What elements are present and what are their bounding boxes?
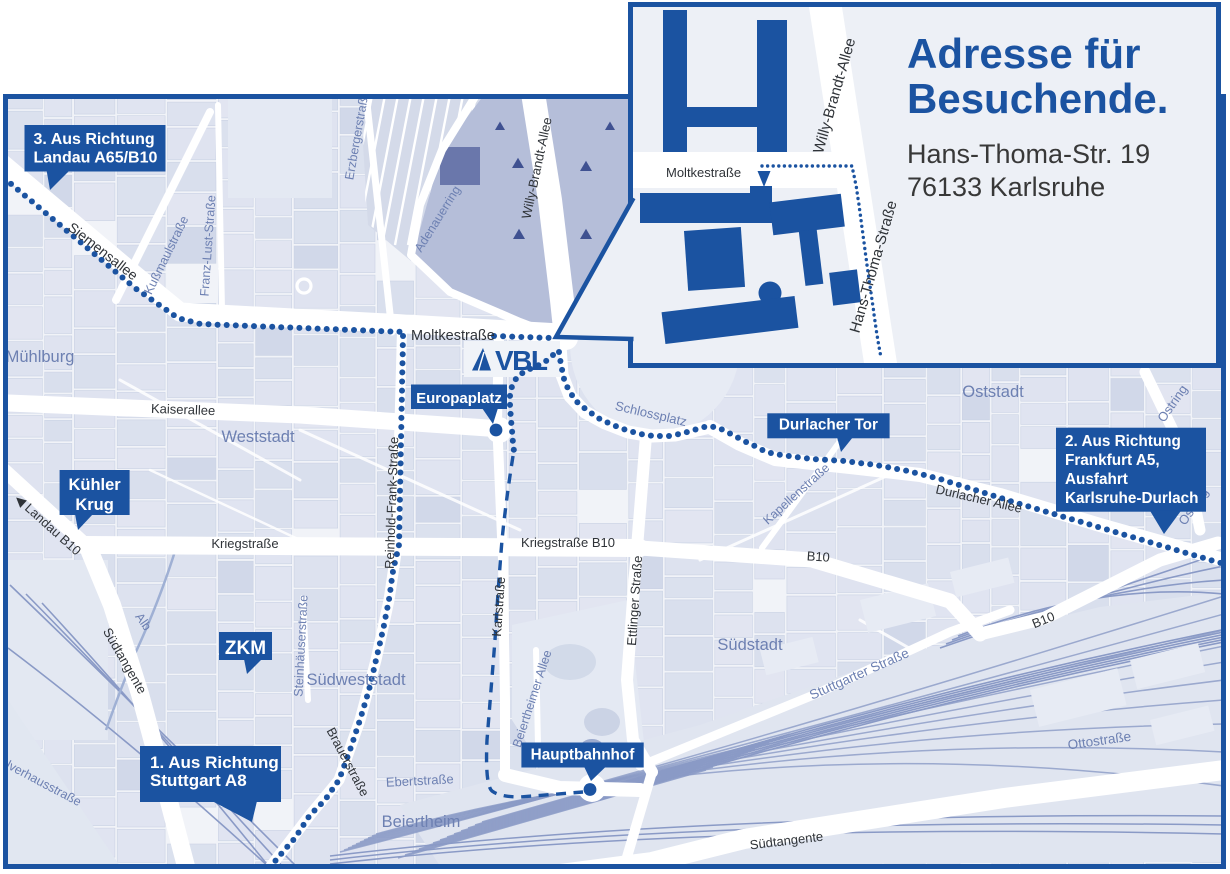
svg-text:Frankfurt A5,: Frankfurt A5, [1065,452,1160,469]
svg-text:Landau A65/B10: Landau A65/B10 [34,150,158,167]
svg-text:Besuchende.: Besuchende. [907,75,1168,122]
svg-text:ZKM: ZKM [225,638,266,659]
svg-text:1. Aus Richtung: 1. Aus Richtung [150,753,279,772]
svg-text:B10: B10 [806,548,830,565]
svg-text:Hauptbahnhof: Hauptbahnhof [531,747,636,764]
svg-text:Kriegstraße: Kriegstraße [211,536,278,551]
svg-text:3. Aus Richtung: 3. Aus Richtung [34,131,155,148]
svg-text:Adresse für: Adresse für [907,30,1140,77]
svg-text:Mühlburg: Mühlburg [6,348,75,366]
svg-text:76133 Karlsruhe: 76133 Karlsruhe [907,172,1105,202]
svg-text:VBL: VBL [495,345,548,376]
svg-text:2. Aus Richtung: 2. Aus Richtung [1065,433,1181,450]
svg-text:Beiertheim: Beiertheim [382,813,461,831]
svg-text:Hans-Thoma-Str. 19: Hans-Thoma-Str. 19 [907,139,1150,169]
svg-text:Durlacher Tor: Durlacher Tor [779,417,878,434]
svg-text:Moltkestraße: Moltkestraße [666,165,741,180]
svg-text:Oststadt: Oststadt [962,383,1024,401]
svg-text:Stuttgart A8: Stuttgart A8 [150,771,247,790]
svg-text:Moltkestraße: Moltkestraße [411,328,495,344]
svg-text:Weststadt: Weststadt [221,428,294,446]
svg-text:Kühler: Kühler [68,476,121,494]
svg-text:Europaplatz: Europaplatz [416,390,502,407]
svg-text:Kriegstraße B10: Kriegstraße B10 [521,535,615,550]
svg-text:Ausfahrt: Ausfahrt [1065,471,1128,488]
svg-text:Südweststadt: Südweststadt [306,671,405,689]
svg-text:Karlsruhe-Durlach: Karlsruhe-Durlach [1065,490,1198,507]
svg-text:Krug: Krug [75,496,114,514]
svg-text:Südstadt: Südstadt [717,636,783,654]
svg-text:Kaiserallee: Kaiserallee [151,401,216,418]
